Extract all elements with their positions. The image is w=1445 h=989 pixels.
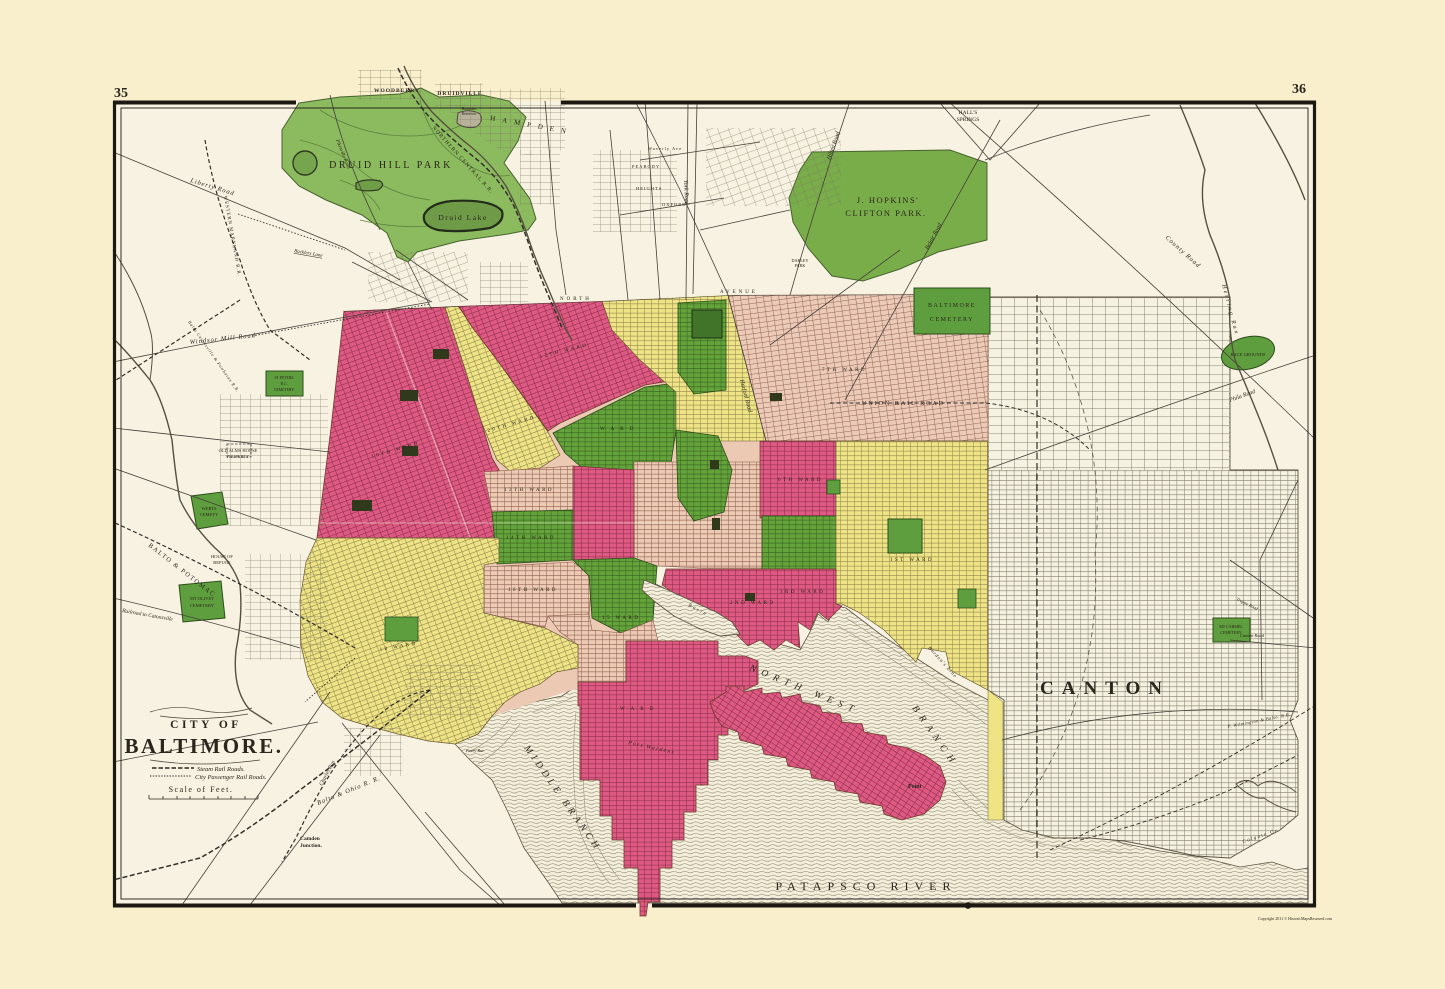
svg-text:SPRINGS: SPRINGS	[957, 117, 980, 123]
svg-text:OLD ALMS HOUSE: OLD ALMS HOUSE	[219, 448, 258, 453]
svg-text:6TH WARD: 6TH WARD	[778, 478, 823, 483]
svg-text:16TH WARD: 16TH WARD	[508, 588, 558, 593]
svg-text:W A R D: W A R D	[620, 707, 656, 712]
svg-text:OXFORD: OXFORD	[662, 202, 687, 207]
svg-text:Junction.: Junction.	[300, 843, 322, 849]
svg-text:15 WARD: 15 WARD	[602, 616, 640, 621]
svg-text:DRUIDVILLE: DRUIDVILLE	[437, 91, 482, 97]
svg-text:CEMETY: CEMETY	[200, 512, 219, 517]
svg-text:13TH WARD: 13TH WARD	[504, 488, 554, 493]
svg-text:ST PETERS: ST PETERS	[274, 376, 293, 380]
svg-text:BALTIMORE: BALTIMORE	[928, 303, 976, 309]
svg-text:MT CARMEL: MT CARMEL	[1219, 624, 1243, 629]
svg-text:City Passenger Rail Roads.: City Passenger Rail Roads.	[195, 774, 267, 781]
svg-text:CEMETERY: CEMETERY	[930, 317, 974, 323]
svg-text:UNION RAIL ROAD: UNION RAIL ROAD	[862, 401, 945, 407]
svg-text:Druid Lake: Druid Lake	[438, 213, 487, 222]
svg-text:Steam Rail Roads.: Steam Rail Roads.	[197, 766, 245, 773]
svg-text:Waverly Ave: Waverly Ave	[648, 146, 682, 151]
svg-text:CANTON: CANTON	[1040, 678, 1170, 699]
svg-text:MT OLIVET: MT OLIVET	[190, 596, 214, 601]
svg-text:CEMETERY: CEMETERY	[190, 603, 215, 608]
svg-text:PARK: PARK	[795, 263, 806, 268]
svg-text:W A R D: W A R D	[600, 427, 636, 432]
svg-text:NORTH: NORTH	[560, 297, 592, 302]
svg-text:PROPERTY: PROPERTY	[227, 454, 250, 459]
svg-text:Ferry Bar: Ferry Bar	[465, 748, 484, 753]
svg-text:WOODBERRY: WOODBERRY	[374, 88, 420, 94]
svg-text:PEABODY: PEABODY	[632, 164, 660, 169]
svg-text:CEMETERY: CEMETERY	[274, 388, 295, 392]
svg-text:Camden: Camden	[300, 836, 320, 842]
svg-text:36: 36	[1292, 82, 1306, 97]
svg-text:Copyright 2011 © HistoricMaps: Copyright 2011 © HistoricMapsRestored.co…	[1258, 916, 1333, 921]
svg-text:3RD WARD: 3RD WARD	[780, 590, 825, 595]
svg-text:RACE GROUNDS: RACE GROUNDS	[1231, 352, 1266, 357]
svg-text:14TH WARD: 14TH WARD	[506, 536, 556, 541]
svg-text:PATAPSCO RIVER: PATAPSCO RIVER	[776, 879, 957, 893]
svg-text:Canton Road: Canton Road	[1240, 633, 1265, 638]
svg-text:BALTIMORE.: BALTIMORE.	[124, 734, 283, 758]
svg-text:HOUSE OF: HOUSE OF	[211, 554, 233, 559]
svg-text:AVENUE: AVENUE	[720, 290, 758, 295]
svg-text:REFUGE: REFUGE	[213, 560, 231, 565]
svg-text:Point: Point	[908, 784, 922, 790]
svg-text:HALL'S: HALL'S	[959, 110, 978, 116]
svg-text:CLIFTON PARK.: CLIFTON PARK.	[845, 208, 926, 218]
svg-text:WERTS: WERTS	[202, 506, 217, 511]
svg-text:2ND WARD: 2ND WARD	[730, 601, 776, 606]
svg-text:Hampden: Hampden	[462, 107, 477, 111]
svg-text:CEMETERY: CEMETERY	[1220, 630, 1241, 635]
svg-text:J. HOPKINS': J. HOPKINS'	[857, 195, 919, 205]
svg-text:7TH WARD: 7TH WARD	[822, 368, 867, 373]
svg-text:R.C.: R.C.	[281, 382, 288, 386]
svg-text:35: 35	[114, 86, 128, 101]
svg-text:HEIGHTS: HEIGHTS	[636, 186, 662, 191]
svg-text:Scale of Feet.: Scale of Feet.	[169, 785, 234, 794]
svg-text:1ST WARD: 1ST WARD	[890, 558, 934, 563]
svg-text:Reservoir: Reservoir	[462, 112, 477, 116]
svg-text:CITY OF: CITY OF	[170, 719, 242, 731]
